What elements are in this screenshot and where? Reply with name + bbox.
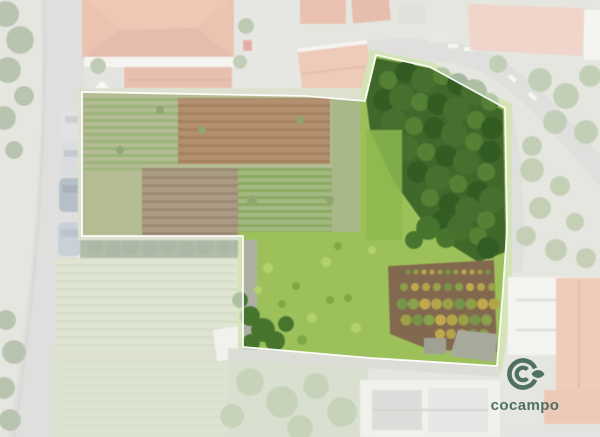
grey-patch-small: [424, 338, 446, 354]
crop-rows: [84, 96, 178, 170]
fallow-patch: [84, 170, 142, 236]
grey-soil-patch: [142, 168, 238, 236]
upper-farmland: [78, 88, 370, 240]
logo-text: cocampo: [491, 397, 560, 414]
aerial-photo: cocampo: [0, 0, 600, 437]
screenshot: cocampo: [0, 0, 600, 437]
bright-green-strip: [366, 130, 402, 240]
